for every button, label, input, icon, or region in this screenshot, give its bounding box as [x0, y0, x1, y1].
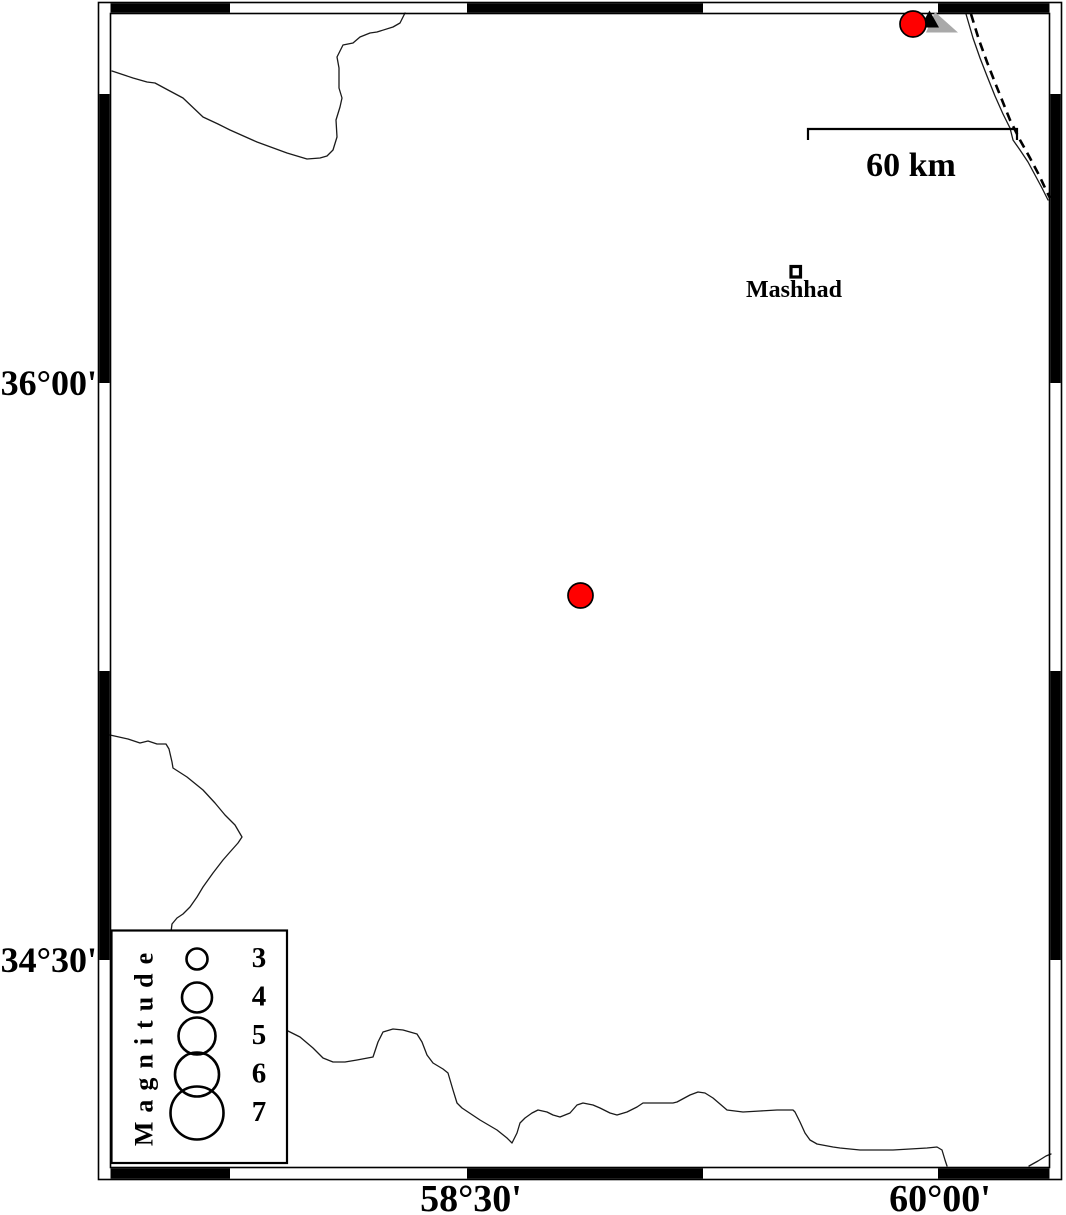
frame-segment: [1050, 671, 1060, 960]
epicenter-northeast: [900, 11, 926, 37]
international-border: [966, 14, 1050, 200]
city-square-marker: [791, 267, 801, 278]
seismicity-map-page: 36°00' 34°30' 58°30' 60°00' 60 km Mashha…: [0, 0, 1066, 1215]
river-top-left: [112, 13, 405, 159]
border-dashed-line: [971, 14, 1050, 198]
legend-title: Magnitude: [130, 944, 159, 1146]
frame-segment: [938, 3, 1050, 12]
frame-segment: [99, 94, 109, 383]
frame-segment: [1050, 94, 1060, 383]
river-bottom: [286, 1029, 947, 1166]
legend-label-m6: 6: [252, 1058, 267, 1090]
frame-segment: [111, 1168, 231, 1178]
seismicity-map: 36°00' 34°30' 58°30' 60°00' 60 km Mashha…: [0, 0, 1066, 1215]
magnitude-legend: Magnitude 3 4 5 6 7: [112, 931, 288, 1164]
epicenters: [568, 11, 926, 608]
lat-label-34-30: 34°30': [1, 940, 97, 980]
legend-label-m5: 5: [252, 1019, 267, 1051]
legend-label-m7: 7: [252, 1096, 267, 1128]
lon-label-60-00: 60°00': [889, 1178, 991, 1215]
legend-label-m3: 3: [252, 942, 267, 974]
border-river-line: [966, 14, 1048, 200]
scale-bar-label: 60 km: [866, 147, 956, 184]
frame-segment: [111, 3, 231, 12]
city-mashhad: Mashhad: [746, 267, 843, 304]
lon-label-58-30: 58°30': [420, 1178, 522, 1215]
river-bottom-right-corner: [1029, 1154, 1051, 1166]
scale-bar-line: [808, 129, 1017, 140]
river-left-middle: [110, 735, 242, 932]
scale-bar: 60 km: [808, 129, 1017, 184]
frame-segment: [99, 671, 109, 960]
lat-label-36: 36°00': [1, 363, 97, 403]
legend-label-m4: 4: [252, 981, 267, 1013]
city-label: Mashhad: [746, 277, 843, 303]
epicenter-central: [568, 583, 593, 608]
frame-segment: [467, 3, 703, 12]
